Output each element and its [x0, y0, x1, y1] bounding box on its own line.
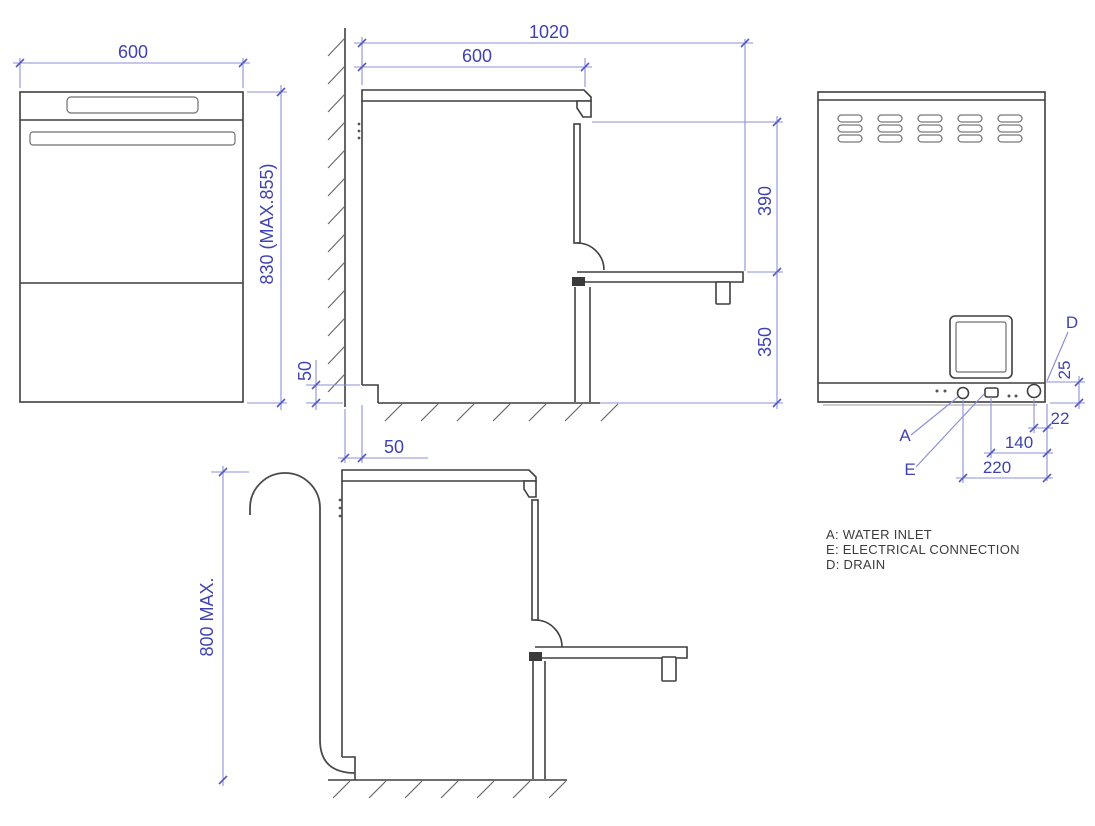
screw-dot: [936, 390, 939, 393]
drain-connector: [1028, 385, 1041, 398]
rear-bottom-recess-2: [342, 757, 355, 780]
top-rear-lip: [577, 101, 591, 117]
door-closed-panel: [574, 124, 580, 243]
total-depth-label: 1020: [529, 22, 569, 42]
floor-hatching: [385, 404, 618, 421]
dim-total-depth: 1020: [354, 22, 753, 271]
floor-hatching-2: [333, 781, 566, 798]
legend-water-inlet: A: WATER INLET: [826, 527, 932, 542]
drawing-svg: 600 830 (MAX.855): [0, 0, 1095, 826]
legend: A: WATER INLET E: ELECTRICAL CONNECTION …: [826, 527, 1020, 572]
dim-drain-vertical: 25: [1046, 361, 1085, 409]
hinge-arc: [577, 243, 604, 270]
front-view: 600 830 (MAX.855): [13, 42, 287, 410]
recess-height-label: 50: [295, 361, 315, 381]
top-rear-lip-2: [524, 481, 536, 497]
water-inlet-letter: A: [899, 426, 911, 445]
legend-drain: D: DRAIN: [826, 557, 885, 572]
electrical-offset-label: 140: [1005, 433, 1033, 452]
installation-drawing: 600 830 (MAX.855): [0, 0, 1095, 826]
water-inlet-offset-label: 220: [983, 458, 1011, 477]
side-view-door-open: 1020 600 390 350: [295, 22, 783, 463]
counter-top-slab-2: [342, 470, 536, 481]
water-inlet-connector: [958, 388, 969, 399]
legend-electrical: E: ELECTRICAL CONNECTION: [826, 542, 1020, 557]
dim-door-drop: 390: [592, 116, 783, 278]
dim-front-width: 600: [13, 42, 250, 88]
door-height-label: 350: [755, 327, 775, 357]
side-view-drain-hose: 800 MAX.: [197, 466, 687, 798]
dim-drain-horizontal: 22: [1028, 399, 1069, 433]
door-foot-2: [662, 657, 676, 681]
wall-hatching: [328, 38, 345, 392]
open-door-tray: [577, 272, 743, 282]
dim-wall-clearance: 50: [338, 405, 428, 463]
hinge-block-2: [529, 652, 542, 661]
electrical-letter: E: [904, 460, 915, 479]
screw-dot: [944, 390, 947, 393]
drain-horizontal-label: 22: [1051, 409, 1070, 428]
dim-body-depth: 600: [354, 46, 592, 87]
drain-max-height-label: 800 MAX.: [197, 577, 217, 656]
rear-view: A E D 25 22 140: [818, 92, 1085, 483]
dim-recess-height: 50: [295, 360, 360, 410]
front-width-label: 600: [118, 42, 148, 62]
screw-dot: [1008, 395, 1011, 398]
dim-door-height: 350: [600, 272, 783, 409]
screw-dot: [1015, 395, 1018, 398]
hinge-block: [572, 277, 585, 286]
dim-front-height: 830 (MAX.855): [247, 85, 287, 410]
hinge-arc-2: [535, 620, 562, 647]
door-drop-label: 390: [755, 186, 775, 216]
rear-cabinet-outline: [818, 92, 1045, 402]
drain-letter: D: [1066, 313, 1078, 332]
rear-connection-marks: [358, 123, 361, 140]
counter-top-slab: [362, 90, 591, 101]
front-height-label: 830 (MAX.855): [257, 163, 277, 284]
door-closed-panel-2: [532, 500, 538, 620]
door-foot: [716, 282, 730, 304]
electrical-connector: [985, 388, 998, 397]
wall-clearance-label: 50: [384, 437, 404, 457]
drain-vertical-label: 25: [1055, 361, 1074, 380]
body-depth-label: 600: [462, 46, 492, 66]
dim-drain-max-height: 800 MAX.: [197, 466, 249, 786]
front-cabinet-outline: [20, 92, 243, 402]
rear-connection-marks-2: [339, 499, 342, 518]
rear-bottom-recess: [362, 385, 378, 403]
drain-hose: [250, 473, 355, 773]
